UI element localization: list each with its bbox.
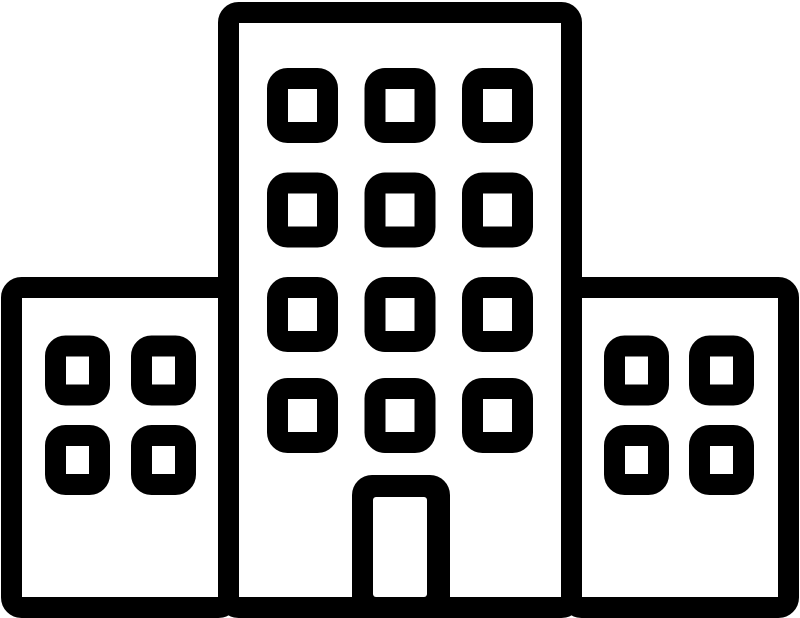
right-wing-window-r1c2	[700, 346, 744, 395]
building-icon	[0, 0, 800, 618]
center-tower-window-r3c3	[473, 288, 523, 342]
left-wing-window-r1c1	[56, 346, 100, 395]
center-tower-window-r2c2	[375, 183, 425, 237]
center-tower-window-r4c3	[473, 389, 523, 443]
icon-canvas	[0, 0, 800, 618]
right-wing-window-r2c1	[615, 436, 659, 485]
center-tower-window-r1c2	[375, 79, 425, 133]
right-wing-window-r2c2	[700, 436, 744, 485]
center-tower-window-r4c1	[278, 389, 328, 443]
center-tower-window-r4c2	[375, 389, 425, 443]
left-wing-window-r2c1	[56, 436, 100, 485]
center-tower-window-r1c3	[473, 79, 523, 133]
left-wing-window-r1c2	[142, 346, 186, 395]
door-opening	[373, 497, 427, 597]
center-tower-window-r2c1	[278, 183, 328, 237]
center-tower-window-r1c1	[278, 79, 328, 133]
right-wing-window-r1c1	[615, 346, 659, 395]
center-tower-window-r3c2	[375, 288, 425, 342]
center-tower-window-r3c1	[278, 288, 328, 342]
center-tower-window-r2c3	[473, 183, 523, 237]
left-wing-window-r2c2	[142, 436, 186, 485]
